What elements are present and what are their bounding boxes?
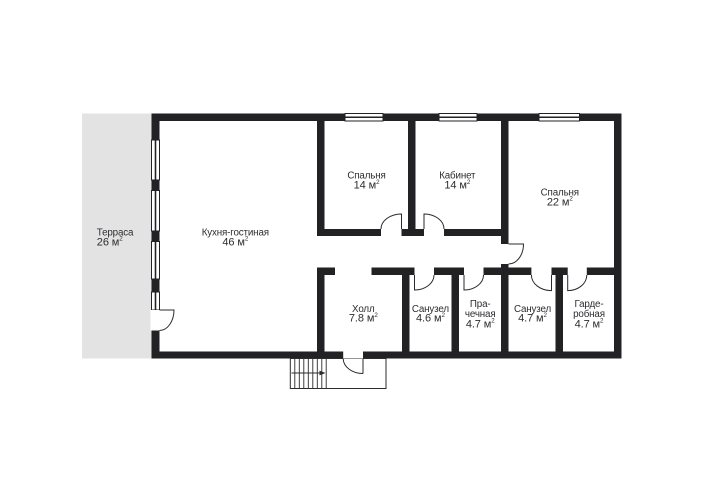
svg-text:4.7 м2: 4.7 м2 <box>575 318 604 331</box>
svg-text:4.7 м2: 4.7 м2 <box>466 318 495 331</box>
svg-text:4.7 м2: 4.7 м2 <box>518 312 547 325</box>
svg-text:7.8 м2: 7.8 м2 <box>349 312 378 325</box>
svg-text:4.6 м2: 4.6 м2 <box>416 312 445 325</box>
